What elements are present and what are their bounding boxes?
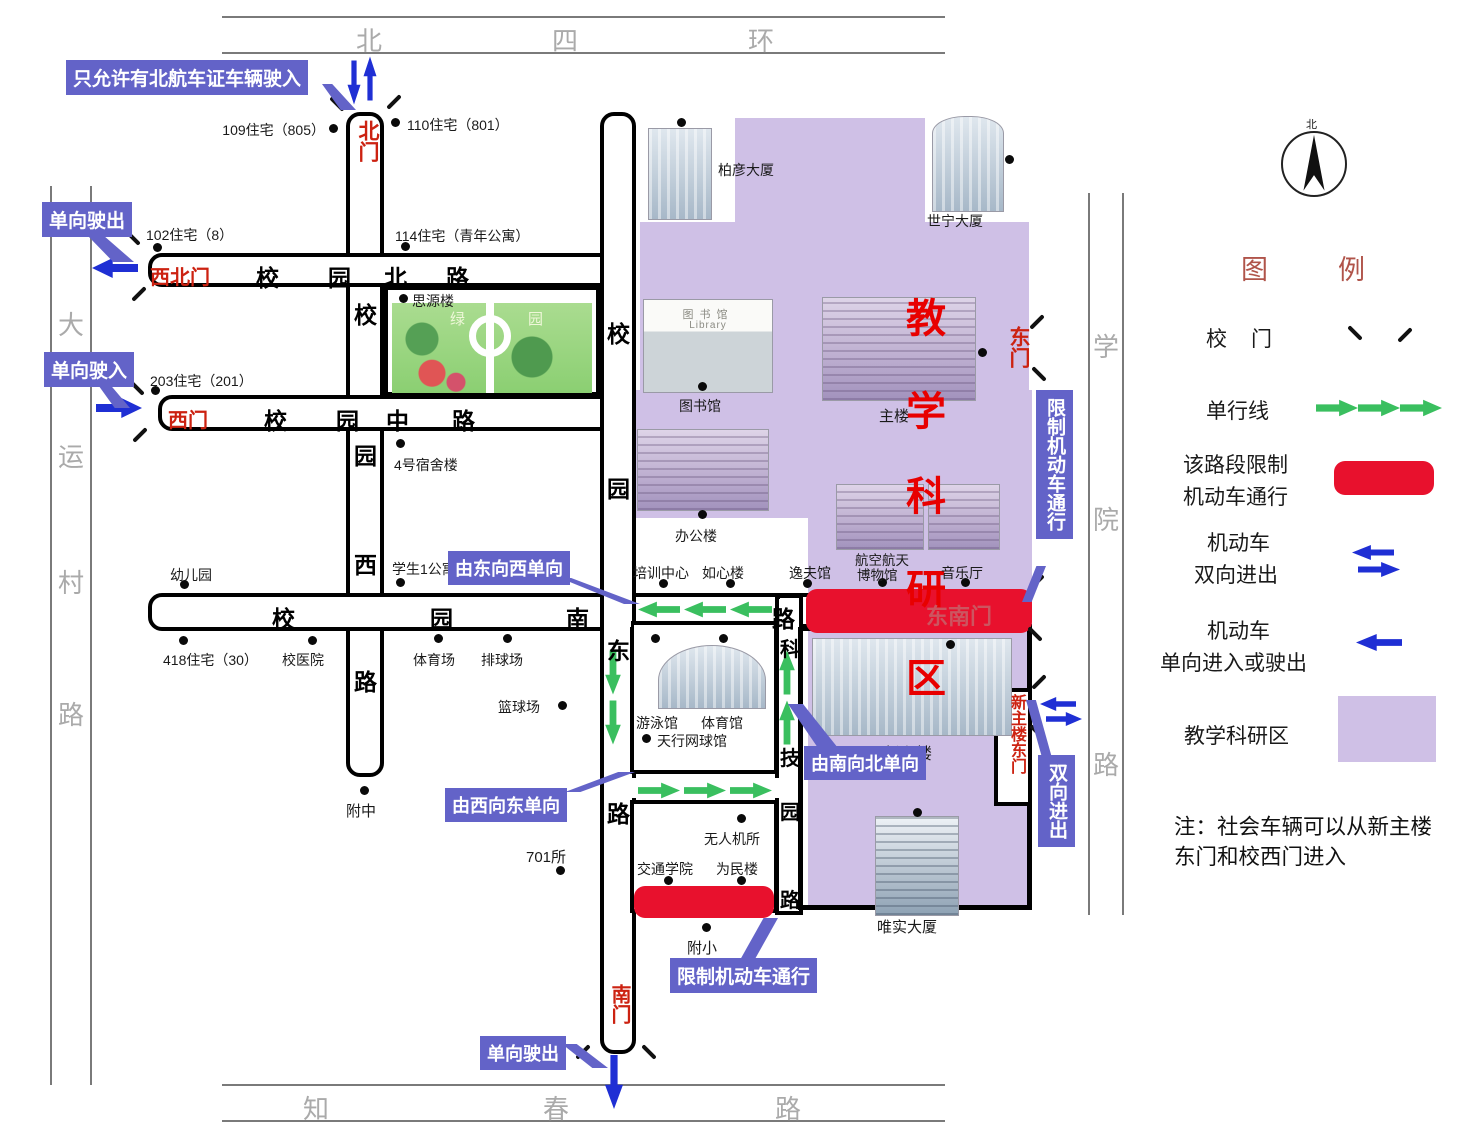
road-name-char: 路 [58,695,84,732]
zone-char: 学 [906,379,946,437]
restricted-segment-south [634,886,774,918]
poi-label: 博物馆 [857,564,898,584]
poi-label: 篮球场 [498,697,540,717]
gate-south: 南门 [605,984,634,1024]
road-name-char: 路 [607,795,630,829]
poi-dot [391,118,400,127]
legend-title: 例 [1338,248,1365,287]
poi-label: 110住宅（801） [407,115,509,135]
road-name-char: 校 [272,600,295,634]
poi-dot [677,118,686,127]
road-name-char: 四 [552,21,578,58]
road-name-char: 北 [356,21,382,58]
legend-title: 图 [1241,248,1268,287]
poi-dot [556,866,565,875]
annotation-north-gate-rule: 只允许有北航车证车辆驶入 [66,60,308,95]
road-name-char: 校 [607,315,630,349]
poi-label: 109住宅（805） [213,120,325,140]
annotation-south-exit: 单向驶出 [480,1036,566,1070]
annotation-east-to-west: 由东向西单向 [448,551,570,585]
road-name-char: 园 [328,259,351,293]
road-name-char: 春 [543,1089,569,1126]
road-name-char: 东 [607,632,630,666]
zone-char: 科 [906,464,946,522]
green-park-char: 绿 [450,308,465,329]
road-name-char: 技 [780,742,800,771]
road-name-char: 路 [1093,745,1119,782]
one-way-arrow-east [730,782,772,799]
poi-dot [651,634,660,643]
one-way-arrow-icon [1400,399,1442,417]
office-building-photo [637,429,769,511]
poi-dot [308,636,317,645]
poi-label: 游泳馆 [636,713,678,733]
road-name-char: 园 [336,402,359,436]
road-name-char: 路 [452,402,475,436]
road-junction [774,778,781,798]
poi-label: 体育场 [413,650,455,670]
legend-motor-one-way-label: 机动车 [1207,615,1270,645]
legend-motor-one-way-label: 单向进入或驶出 [1160,647,1307,677]
poi-label: 世宁大厦 [927,211,983,231]
campus-traffic-map: 北 四 环 知 春 路 大 运 村 路 学 院 路 图书馆 Library 绿 [0,0,1473,1127]
gate-tick-icon [1031,366,1047,382]
annotation-pointer [88,236,134,262]
poi-label: 音乐厅 [941,563,983,583]
one-way-arrow-icon [1316,399,1358,417]
poi-label: 如心楼 [702,563,744,583]
poi-label: 思源楼 [412,291,454,311]
gate-east: 东门 [1003,326,1033,368]
road-name-char: 西 [354,546,377,580]
zone-char: 区 [906,646,946,704]
restricted-segment-icon [1334,461,1434,495]
poi-label: 培训中心 [633,563,689,583]
road-name-char: 校 [264,402,287,436]
compass-needle-icon [1283,133,1345,195]
legend-motor-two-way-label: 双向进出 [1194,559,1278,589]
road-name-char: 路 [775,1089,801,1126]
legend-restrict-label: 机动车通行 [1183,481,1288,511]
road-name-char: 校 [256,259,279,293]
road-name-char: 环 [748,21,774,58]
poi-dot [913,808,922,817]
poi-dot [396,439,405,448]
road-name-char: 路 [780,884,800,913]
gate-tick-icon [386,94,402,110]
legend-restrict-label: 该路段限制 [1183,449,1288,479]
gate-north: 北门 [352,120,382,162]
zone-swatch-icon [1338,696,1436,762]
xueyuan-road [1088,193,1124,915]
motor-arrow-down [348,61,361,105]
gate-tick-icon [132,427,148,443]
annotation-south-to-north: 由南向北单向 [804,746,926,780]
road-name-char: 园 [354,437,377,471]
legend-one-way-label: 单行线 [1206,395,1269,425]
poi-label: 幼儿园 [170,565,212,585]
road-name-char: 路 [354,663,377,697]
poi-dot [642,734,651,743]
library-photo-caption-en: Library [653,320,763,331]
road-name-char: 路 [772,600,795,634]
road-name-char: 运 [58,437,84,474]
roundabout-icon [469,315,511,357]
motor-arrow-icon [1352,545,1394,560]
poi-label: 附中 [346,800,376,821]
road-name-char: 园 [780,796,800,825]
annotation-west-enter: 单向驶入 [44,352,134,387]
road-name-char: 院 [1093,500,1119,537]
motor-arrow-two-way [1040,697,1076,711]
poi-label: 701所 [526,846,566,867]
legend-gate-label: 门 [1251,323,1272,353]
poi-dot [329,124,338,133]
gate-southeast: 东南门 [926,599,992,631]
poi-dot [946,640,955,649]
motor-arrow-two-way [1046,712,1082,726]
map-note: 东门和校西门进入 [1174,840,1346,871]
gym-photo [658,645,766,709]
one-way-arrow-east [638,782,680,799]
gate-new-main-east: 新主楼东门 [1004,694,1028,774]
poi-label: 办公楼 [675,526,717,546]
legend-motor-two-way-label: 机动车 [1207,527,1270,557]
map-note: 注：社会车辆可以从新主楼 [1174,810,1432,841]
gate-tick-icon [641,1044,657,1060]
annotation-west-to-east: 由西向东单向 [445,788,567,822]
road-junction [631,778,637,798]
poi-label: 附小 [687,937,717,958]
road-name-char: 校 [354,296,377,330]
shining-tower-photo [932,116,1004,212]
main-building-photo [822,297,976,401]
north-fourth-ring-road [222,16,945,54]
gate-west: 西门 [168,404,208,433]
annotation-nw-exit: 单向驶出 [42,202,132,237]
gate-tick-icon [131,286,147,302]
compass-icon [1281,131,1347,197]
road-name-char: 北 [384,259,407,293]
road-junction [605,400,631,427]
poi-label: 柏彦大厦 [718,160,774,180]
baiyan-tower-photo [648,128,712,220]
road-name-char: 知 [303,1089,329,1126]
road-name-char: 中 [386,402,409,436]
poi-label: 体育馆 [701,713,743,733]
poi-dot [702,923,711,932]
poi-label: 天行网球馆 [657,731,727,751]
poi-dot [179,636,188,645]
poi-label: 无人机所 [704,829,760,849]
road-name-char: 园 [430,600,453,634]
poi-label: 交通学院 [637,859,693,879]
road-name-char: 大 [58,305,84,342]
poi-dot [698,510,707,519]
road-name-char: 南 [566,600,589,634]
one-way-arrow-east [684,782,726,799]
poi-label: 102住宅（8） [146,225,233,245]
motor-arrow-icon [1356,634,1402,651]
poi-dot [719,634,728,643]
zhichun-road [222,1084,945,1122]
road-name-char: 学 [1093,327,1119,364]
poi-dot [434,634,443,643]
poi-dot [503,634,512,643]
poi-dot [737,814,746,823]
motor-arrow-icon [1358,562,1400,577]
gate-tick-icon [1031,674,1047,690]
poi-label: 4号宿舍楼 [394,455,458,475]
one-way-arrow-icon [1358,399,1400,417]
poi-dot [1005,155,1014,164]
compass-north-label: 北 [1306,116,1317,132]
road-name-char: 园 [607,470,630,504]
poi-label: 为民楼 [716,859,758,879]
zone-char: 教 [906,286,946,344]
poi-label: 学生1公寓 [392,559,456,579]
road-name-char: 路 [446,259,469,293]
gate-northwest: 西北门 [150,261,210,290]
motor-arrow-up [364,57,377,101]
road-name-char: 科 [780,633,800,662]
poi-label: 逸夫馆 [789,563,831,583]
road-junction [351,258,380,283]
poi-label: 校医院 [282,650,324,670]
annotation-two-way: 双向进出 [1038,755,1075,847]
road-name-char: 村 [58,563,84,600]
poi-label: 主楼 [879,405,909,426]
gate-tick-icon [1397,327,1413,343]
poi-dot [360,786,369,795]
poi-label: 排球场 [481,650,523,670]
gate-tick-icon [1347,325,1363,341]
poi-label: 418住宅（30） [163,650,258,670]
poi-label: 114住宅（青年公寓） [395,226,529,246]
annotation-pointer [740,918,778,960]
poi-label: 唯实大厦 [877,916,937,937]
poi-dot [396,578,405,587]
poi-dot [698,382,707,391]
poi-dot [399,294,408,303]
poi-label: 203住宅（201） [150,371,253,391]
poi-label: 图书馆 [679,396,721,416]
annotation-restricted-east: 限制机动车通行 [1036,390,1073,539]
green-park-char: 园 [528,308,543,329]
poi-dot [558,701,567,710]
legend-zone-label: 教学科研区 [1184,720,1289,750]
weishi-tower-photo [875,816,959,916]
legend-gate-label: 校 [1206,323,1227,353]
annotation-restricted-south: 限制机动车通行 [670,958,817,993]
poi-dot [978,348,987,357]
road-junction [605,258,631,283]
